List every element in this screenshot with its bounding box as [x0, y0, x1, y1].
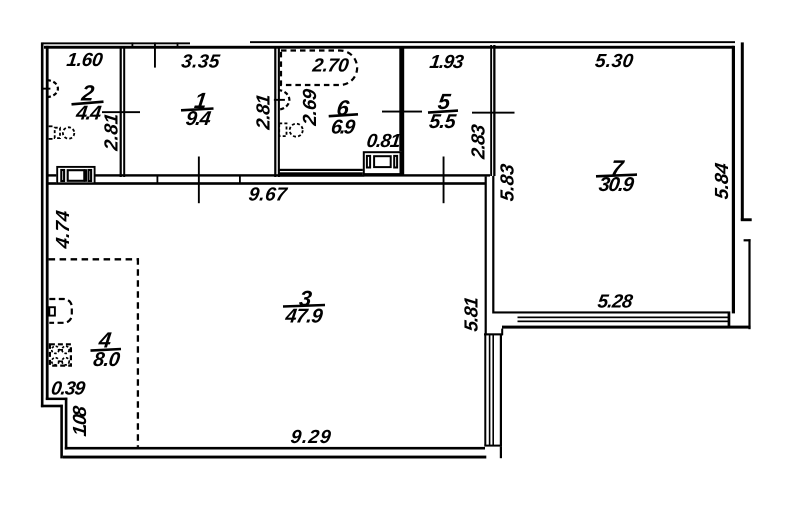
svg-text:1.60: 1.60 [65, 50, 104, 71]
svg-text:3.35: 3.35 [180, 52, 221, 73]
svg-text:0.81: 0.81 [365, 131, 402, 152]
svg-text:2.81: 2.81 [253, 93, 274, 132]
svg-text:2.83: 2.83 [469, 123, 490, 161]
svg-text:5.30: 5.30 [594, 51, 635, 72]
svg-text:5.84: 5.84 [712, 162, 733, 201]
svg-text:2.69: 2.69 [300, 88, 321, 128]
svg-text:5.83: 5.83 [497, 163, 518, 203]
svg-text:9.67: 9.67 [247, 185, 289, 206]
svg-text:4.4: 4.4 [74, 102, 103, 124]
svg-text:8.0: 8.0 [92, 349, 121, 371]
svg-text:1.93: 1.93 [428, 52, 465, 73]
svg-text:47.9: 47.9 [283, 306, 325, 328]
svg-text:6.9: 6.9 [330, 117, 358, 139]
svg-text:0.39: 0.39 [50, 379, 87, 400]
svg-text:4.74: 4.74 [53, 209, 74, 251]
svg-text:1.08: 1.08 [70, 405, 91, 438]
svg-text:9.4: 9.4 [184, 108, 212, 130]
svg-text:2.70: 2.70 [310, 56, 350, 77]
svg-text:2.81: 2.81 [101, 112, 122, 153]
svg-text:30.9: 30.9 [597, 174, 636, 196]
svg-text:9.29: 9.29 [289, 427, 332, 448]
svg-text:5.28: 5.28 [596, 291, 634, 312]
svg-text:5.5: 5.5 [428, 111, 458, 133]
svg-text:5.81: 5.81 [462, 296, 483, 333]
